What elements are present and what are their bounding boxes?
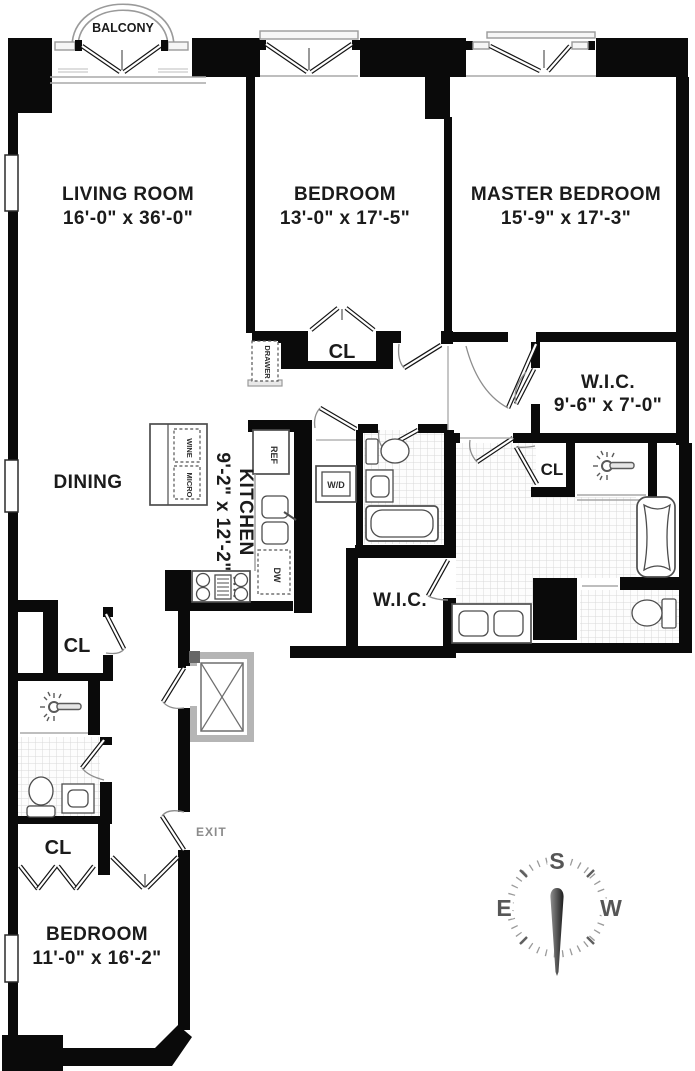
living-room-dimensions: 16'-0" x 36'-0" (63, 208, 193, 229)
master-bedroom-door (466, 344, 536, 408)
hall-closet-door (106, 614, 124, 654)
compass-rose: S E W (496, 848, 622, 976)
living-room-window (5, 155, 18, 211)
kitchen-sink-basin (262, 496, 288, 518)
floor-plan-drawing: S E W BALCONY LIVING ROOM 16'-0" x 36'-0… (0, 0, 695, 1071)
bedroom-2-dimensions: 13'-0" x 17'-5" (280, 208, 410, 229)
closet-label-master: CL (541, 460, 564, 479)
balcony-structure (50, 4, 206, 83)
kitchen-label: KITCHEN (235, 468, 256, 555)
laundry-hall-door (315, 408, 356, 429)
bedroom-3-closet-bifold-doors (20, 866, 94, 889)
bedroom-window (5, 935, 18, 982)
kitchen-sink-basin (262, 522, 288, 544)
hall-wic-label: W.I.C. (373, 590, 427, 611)
master-bedroom-label: MASTER BEDROOM (471, 184, 661, 205)
balcony-side-window (55, 42, 75, 50)
toilet-bowl (381, 439, 409, 463)
elevator (186, 651, 254, 742)
master-vanity (452, 604, 531, 643)
master-bedroom-dimensions: 15'-9" x 17'-3" (501, 208, 631, 229)
living-room-label: LIVING ROOM (62, 184, 194, 205)
bedroom-2-closet-bifold-door (311, 308, 374, 330)
microwave-label: MICRO (185, 473, 194, 498)
master-shower (577, 451, 646, 500)
compass-east-label: E (496, 895, 511, 921)
closet-label-hall: CL (64, 635, 91, 657)
entry-door (163, 668, 184, 708)
exit-door (162, 811, 184, 850)
toilet-tank (27, 806, 55, 817)
vanity-sink (459, 611, 488, 636)
compass-needle (550, 888, 563, 976)
exit-label: EXIT (196, 825, 227, 839)
hall-wic-door (428, 560, 448, 600)
master-wic-dimensions: 9'-6" x 7'-0" (554, 395, 662, 416)
bedroom-2-label: BEDROOM (294, 184, 396, 205)
vanity-sink (494, 611, 523, 636)
dining-window (5, 460, 18, 512)
balcony-side-window (168, 42, 188, 50)
second-shower-head-icon (20, 692, 88, 733)
kitchen-dimensions: 9'-2" x 12'-2" (212, 452, 233, 571)
toilet-bowl (29, 777, 53, 805)
closet-label-bedroom-3: CL (45, 837, 72, 859)
drawer-label: DRAWER (263, 345, 272, 379)
dishwasher-label: DW (272, 568, 282, 583)
bedroom-2-door (399, 344, 441, 368)
master-bathtub (637, 497, 675, 577)
bedroom-2-window (258, 31, 360, 76)
compass-south-label: S (549, 848, 564, 874)
stove (192, 571, 250, 602)
toilet-tank (366, 439, 378, 464)
bedroom-3-double-door (112, 857, 178, 888)
washer-dryer-label: W/D (327, 480, 345, 490)
compass-west-label: W (600, 895, 622, 921)
shower-head-icon (593, 451, 634, 480)
bedroom-3-dimensions: 11'-0" x 16'-2" (32, 948, 161, 969)
master-wic-label: W.I.C. (581, 372, 635, 393)
wine-cooler-label: WINE (185, 438, 194, 458)
floor-plan-page: S E W BALCONY LIVING ROOM 16'-0" x 36'-0… (0, 0, 695, 1071)
dining-label: DINING (54, 472, 123, 493)
balcony-french-doors (82, 46, 160, 72)
master-bedroom-window (466, 32, 596, 76)
bedroom-3-label: BEDROOM (46, 924, 148, 945)
closet-label-bedroom-2: CL (329, 341, 356, 363)
refrigerator-label: REF (269, 446, 279, 465)
balcony-label: BALCONY (92, 21, 154, 35)
